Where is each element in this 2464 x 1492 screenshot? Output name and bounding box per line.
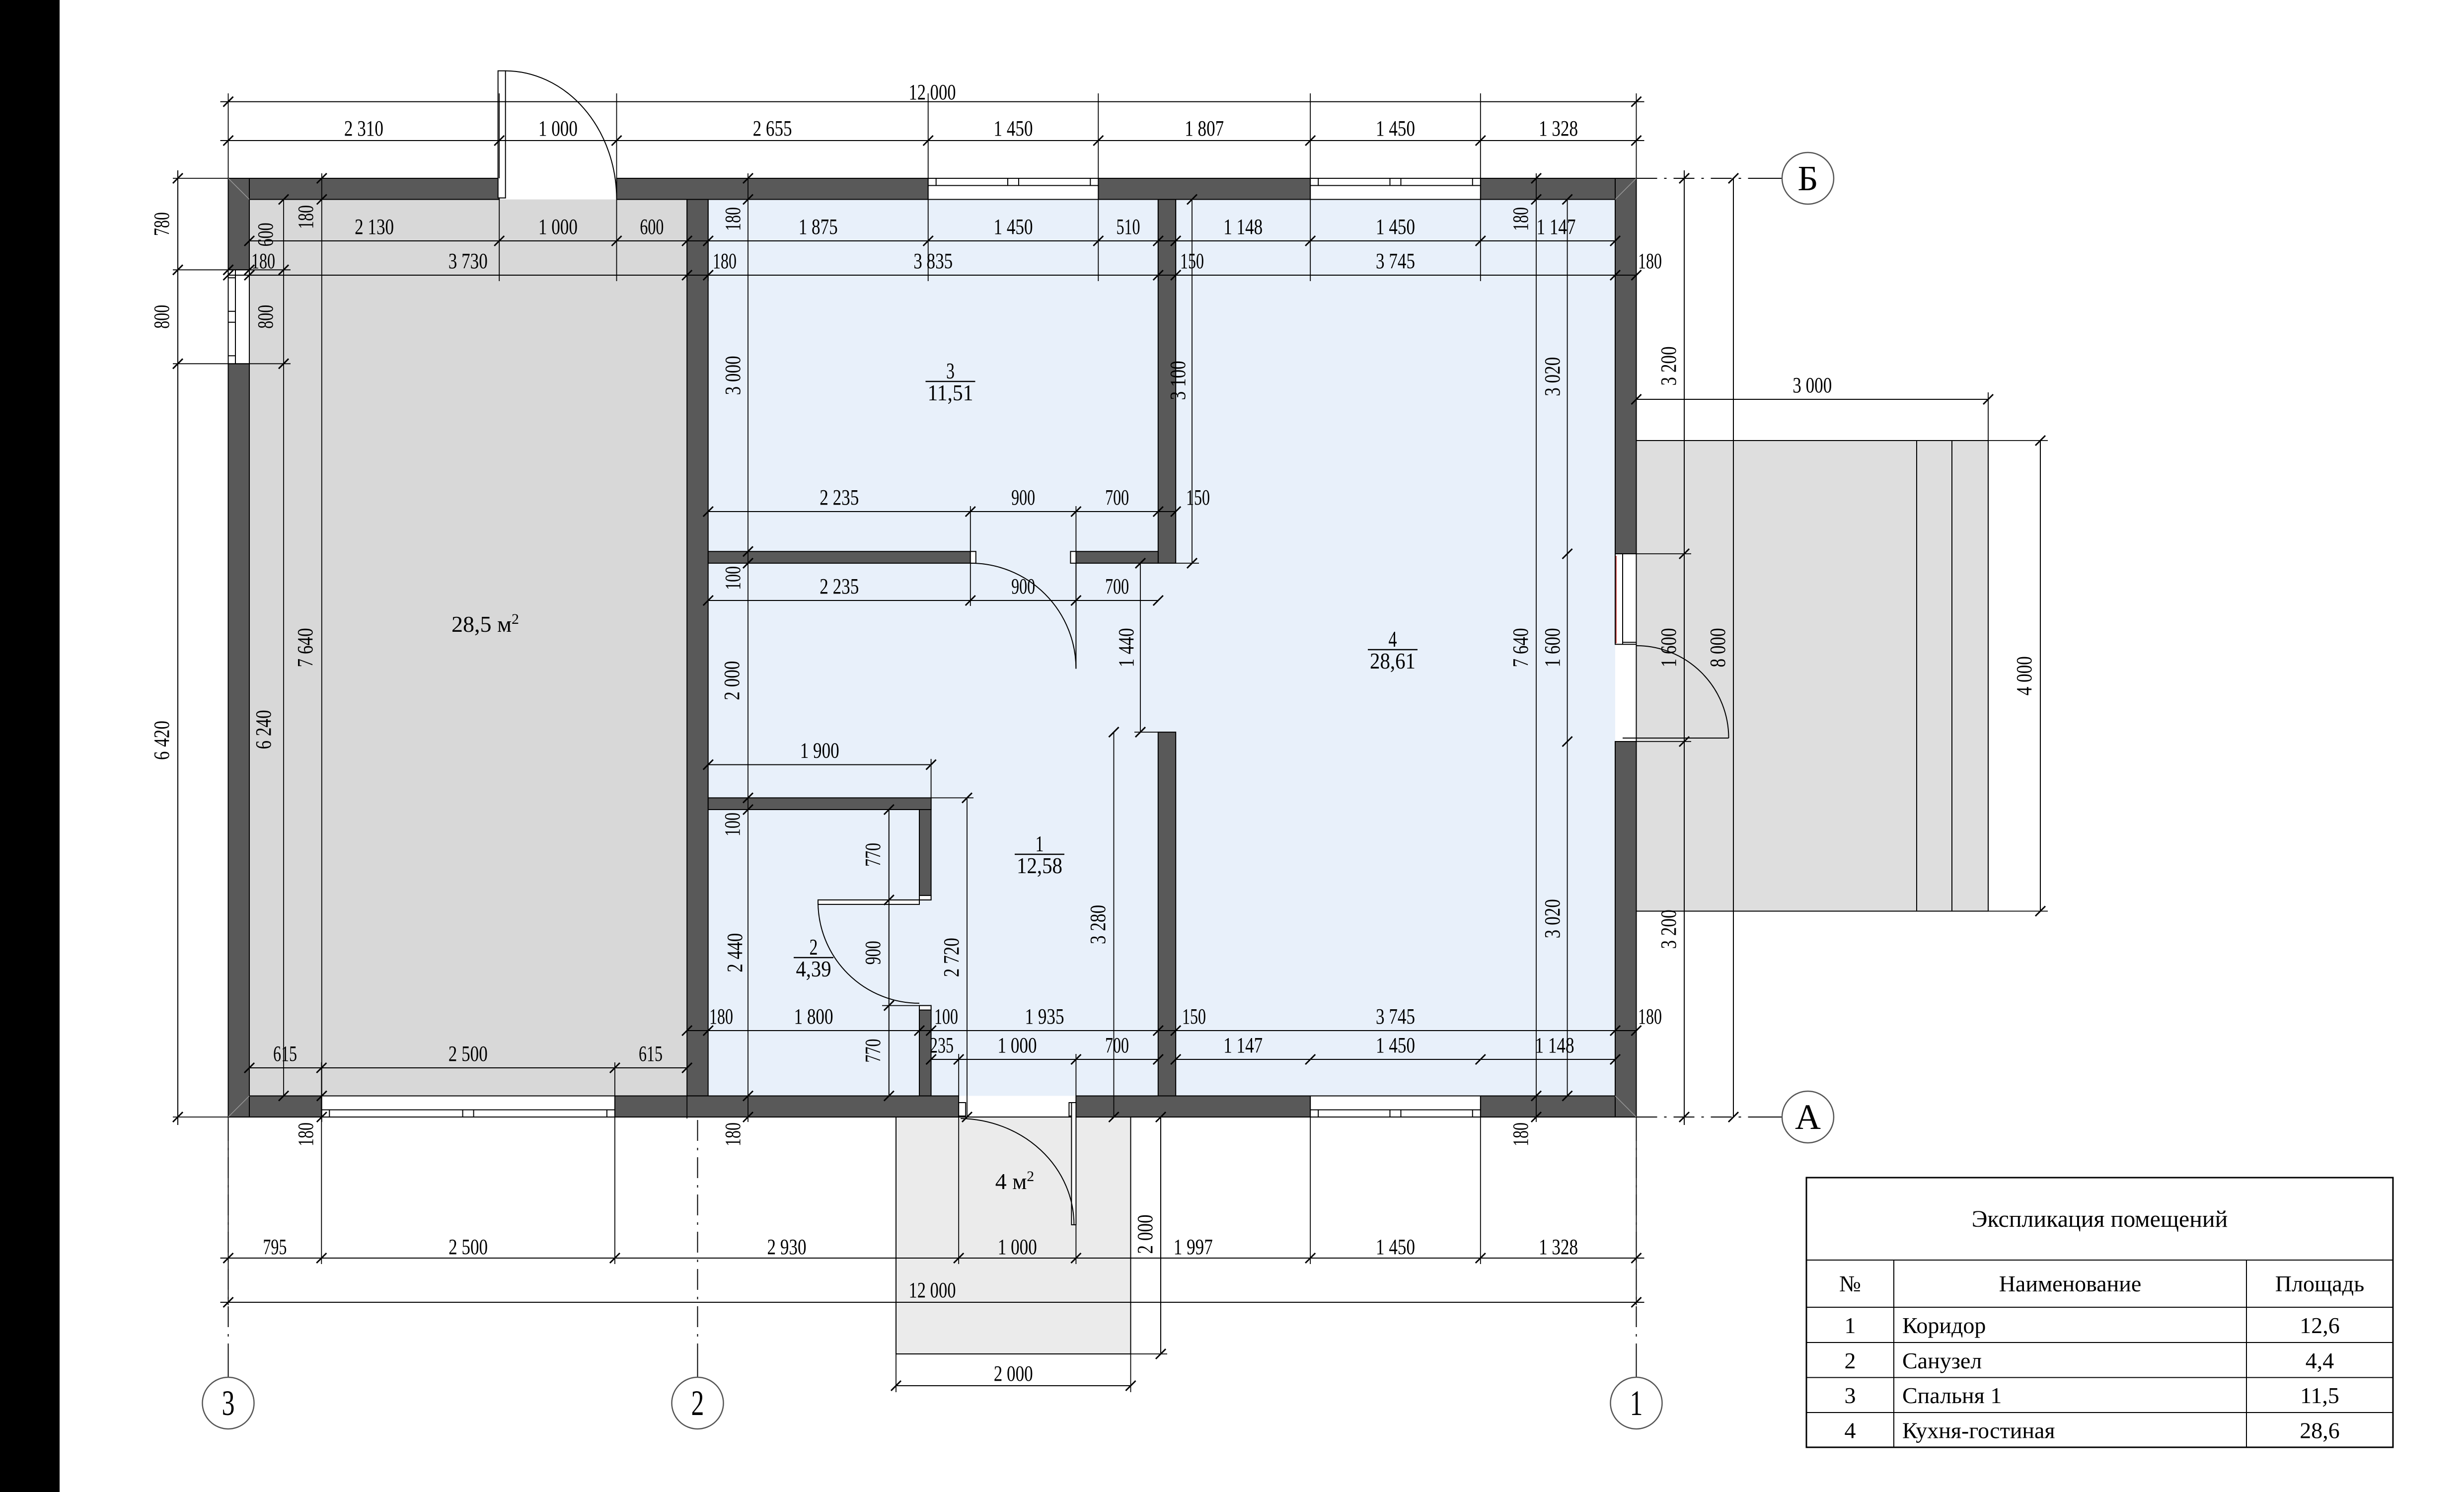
svg-text:150: 150	[1182, 1004, 1206, 1029]
svg-text:12,58: 12,58	[1017, 853, 1062, 878]
svg-text:100: 100	[720, 813, 745, 836]
svg-text:Спальня 1: Спальня 1	[1902, 1383, 2002, 1408]
svg-text:2 000: 2 000	[720, 661, 744, 700]
svg-text:700: 700	[1105, 485, 1129, 510]
svg-text:28,6: 28,6	[2300, 1418, 2340, 1443]
svg-text:3 200: 3 200	[1656, 910, 1681, 949]
svg-text:1 800: 1 800	[794, 1004, 833, 1029]
svg-text:2: 2	[1845, 1348, 1856, 1373]
svg-text:1 000: 1 000	[998, 1235, 1037, 1259]
svg-text:1 450: 1 450	[1376, 1235, 1415, 1259]
svg-text:3 745: 3 745	[1376, 1004, 1415, 1029]
svg-text:100: 100	[721, 566, 745, 590]
svg-text:180: 180	[1508, 207, 1533, 231]
svg-text:12 000: 12 000	[909, 80, 956, 104]
svg-text:1 807: 1 807	[1185, 116, 1224, 141]
svg-text:180: 180	[709, 1004, 733, 1029]
svg-text:2 440: 2 440	[723, 933, 747, 972]
svg-text:2 000: 2 000	[1133, 1215, 1157, 1254]
svg-text:А: А	[1795, 1097, 1821, 1137]
svg-text:615: 615	[639, 1042, 663, 1066]
svg-text:795: 795	[263, 1235, 287, 1259]
svg-text:1 000: 1 000	[538, 215, 578, 239]
svg-text:1 935: 1 935	[1025, 1004, 1064, 1029]
svg-text:600: 600	[640, 215, 664, 239]
svg-text:2 130: 2 130	[355, 215, 394, 239]
svg-text:28,61: 28,61	[1370, 648, 1416, 673]
svg-text:2 310: 2 310	[344, 116, 383, 141]
svg-text:3 020: 3 020	[1540, 357, 1565, 396]
svg-text:1 148: 1 148	[1535, 1033, 1574, 1057]
svg-text:№: №	[1839, 1271, 1861, 1296]
svg-text:4,39: 4,39	[796, 956, 831, 981]
svg-text:Наименование: Наименование	[1999, 1271, 2142, 1296]
svg-text:2 000: 2 000	[994, 1361, 1033, 1386]
svg-text:4: 4	[1845, 1418, 1856, 1443]
svg-text:Кухня-гостиная: Кухня-гостиная	[1902, 1418, 2055, 1443]
svg-text:4,4: 4,4	[2306, 1348, 2334, 1373]
svg-text:8 000: 8 000	[1706, 628, 1730, 668]
svg-text:2 930: 2 930	[767, 1235, 807, 1259]
svg-text:2 500: 2 500	[448, 1235, 488, 1259]
svg-text:1 328: 1 328	[1539, 116, 1578, 141]
svg-text:770: 770	[861, 1039, 885, 1063]
svg-text:3 000: 3 000	[721, 356, 745, 395]
svg-text:1 450: 1 450	[1376, 1033, 1415, 1057]
svg-text:600: 600	[253, 223, 278, 246]
svg-text:1 450: 1 450	[1376, 215, 1415, 239]
svg-text:Санузел: Санузел	[1902, 1348, 1982, 1373]
svg-text:1 000: 1 000	[538, 116, 578, 141]
svg-text:1 997: 1 997	[1174, 1235, 1213, 1259]
svg-text:6 420: 6 420	[149, 721, 174, 760]
svg-text:12 000: 12 000	[909, 1278, 956, 1302]
svg-text:1 600: 1 600	[1656, 628, 1681, 668]
svg-text:510: 510	[1117, 215, 1140, 239]
svg-text:1 600: 1 600	[1540, 628, 1565, 668]
svg-text:3 835: 3 835	[913, 249, 953, 273]
svg-text:900: 900	[1011, 574, 1035, 598]
svg-text:180: 180	[1638, 1004, 1662, 1029]
svg-text:700: 700	[1105, 574, 1129, 598]
svg-text:6 240: 6 240	[251, 710, 276, 749]
svg-text:3 200: 3 200	[1656, 347, 1681, 386]
svg-text:2 235: 2 235	[820, 574, 859, 598]
svg-text:3 280: 3 280	[1086, 905, 1110, 944]
svg-text:180: 180	[251, 249, 275, 273]
svg-text:700: 700	[1105, 1033, 1129, 1057]
svg-text:3 730: 3 730	[448, 249, 488, 273]
svg-text:770: 770	[861, 843, 885, 867]
svg-text:1 450: 1 450	[1376, 116, 1415, 141]
svg-text:180: 180	[294, 205, 318, 229]
svg-text:1: 1	[1630, 1383, 1643, 1423]
svg-text:780: 780	[149, 212, 174, 236]
svg-text:3 745: 3 745	[1376, 249, 1415, 273]
svg-text:2: 2	[691, 1383, 704, 1423]
svg-text:1 147: 1 147	[1223, 1033, 1263, 1057]
svg-text:1: 1	[1845, 1313, 1856, 1338]
svg-text:28,5 м2: 28,5 м2	[451, 611, 519, 637]
svg-text:3 020: 3 020	[1540, 899, 1565, 938]
svg-text:900: 900	[861, 941, 885, 965]
svg-text:Коридор: Коридор	[1902, 1313, 1986, 1338]
svg-text:3: 3	[1845, 1383, 1856, 1408]
svg-text:Площадь: Площадь	[2275, 1271, 2364, 1296]
svg-text:180: 180	[1638, 249, 1662, 273]
svg-text:1 900: 1 900	[800, 739, 839, 763]
svg-text:615: 615	[273, 1042, 297, 1066]
svg-text:800: 800	[149, 305, 174, 329]
svg-text:1 440: 1 440	[1114, 628, 1138, 668]
svg-text:4 000: 4 000	[2012, 656, 2036, 695]
svg-text:1 450: 1 450	[994, 116, 1033, 141]
svg-text:180: 180	[721, 207, 745, 231]
svg-text:2 720: 2 720	[939, 938, 964, 977]
svg-text:Б: Б	[1797, 158, 1818, 198]
svg-text:800: 800	[253, 305, 278, 329]
svg-text:100: 100	[934, 1004, 958, 1029]
svg-text:1 875: 1 875	[799, 215, 838, 239]
svg-text:180: 180	[721, 1122, 745, 1146]
svg-text:900: 900	[1011, 485, 1035, 510]
svg-text:7 640: 7 640	[293, 628, 317, 668]
svg-text:1 328: 1 328	[1539, 1235, 1578, 1259]
svg-text:2 655: 2 655	[753, 116, 792, 141]
svg-text:12,6: 12,6	[2300, 1313, 2340, 1338]
svg-text:1 147: 1 147	[1537, 215, 1576, 239]
svg-text:1 148: 1 148	[1223, 215, 1263, 239]
svg-text:2 235: 2 235	[820, 485, 859, 510]
svg-text:7 640: 7 640	[1508, 628, 1533, 668]
svg-text:11,51: 11,51	[928, 380, 973, 405]
svg-text:Экспликация помещений: Экспликация помещений	[1972, 1206, 2228, 1232]
svg-text:150: 150	[1186, 485, 1210, 510]
svg-text:1 000: 1 000	[998, 1033, 1037, 1057]
svg-text:235: 235	[930, 1033, 954, 1057]
svg-text:3: 3	[222, 1383, 235, 1423]
svg-text:2 500: 2 500	[448, 1042, 488, 1066]
svg-text:180: 180	[294, 1122, 318, 1146]
svg-text:3 000: 3 000	[1792, 373, 1832, 397]
svg-text:180: 180	[713, 249, 737, 273]
svg-text:180: 180	[1508, 1122, 1533, 1146]
svg-text:11,5: 11,5	[2300, 1383, 2339, 1408]
svg-text:1 450: 1 450	[994, 215, 1033, 239]
svg-text:3 100: 3 100	[1166, 361, 1190, 400]
